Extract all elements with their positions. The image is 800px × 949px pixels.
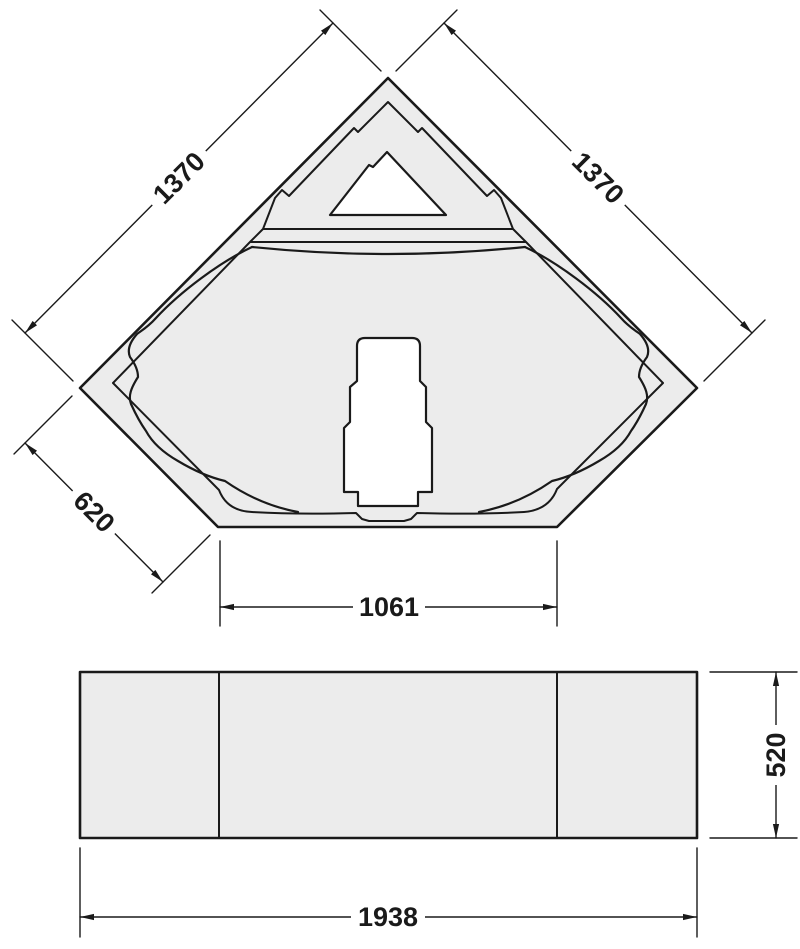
- front-panel-outline: [80, 672, 697, 838]
- technical-drawing-page: 1370 1370 620: [0, 0, 800, 949]
- dimension-panel-width: 1938: [80, 848, 697, 937]
- corner-bathtub-technical-drawing: 1370 1370 620: [0, 0, 800, 949]
- dimension-panel-height: 520: [710, 672, 797, 838]
- dimension-bottom-width: 1061: [220, 541, 557, 626]
- front-view: [80, 672, 697, 838]
- top-view: [80, 78, 697, 527]
- extension-line: [704, 320, 765, 381]
- extension-line: [14, 396, 72, 454]
- dim-label-panel-height: 520: [761, 732, 791, 777]
- extension-line: [396, 10, 457, 71]
- extension-line: [152, 535, 210, 593]
- dim-label-panel-width: 1938: [358, 902, 418, 932]
- extension-line: [12, 320, 73, 381]
- dim-label-bottom-width: 1061: [359, 592, 419, 622]
- extension-line: [320, 10, 381, 71]
- drain-fitting-template: [344, 338, 432, 506]
